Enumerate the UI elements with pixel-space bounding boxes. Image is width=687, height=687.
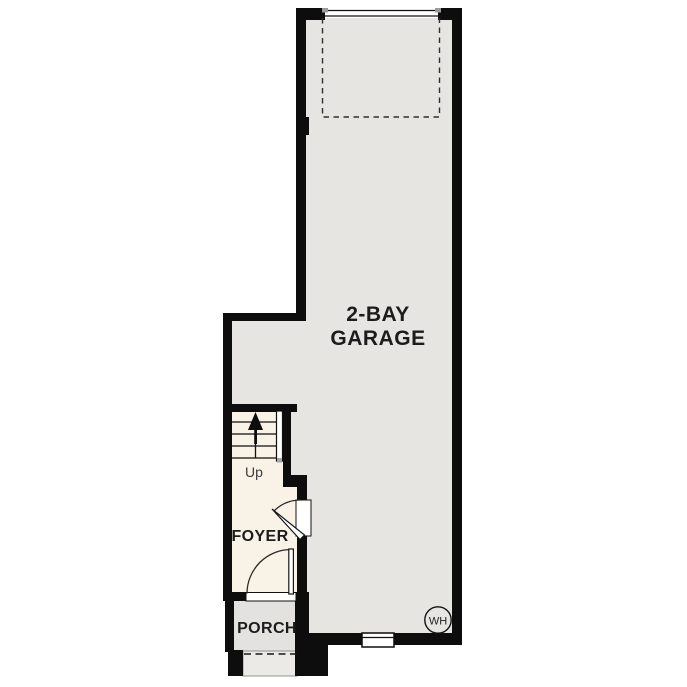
up-arrow-stem bbox=[254, 429, 257, 444]
threshold-box bbox=[362, 633, 394, 647]
water-heater: WH bbox=[425, 607, 451, 633]
door-jamb-cap bbox=[435, 8, 441, 13]
garage-label-line1: 2-BAY bbox=[346, 303, 410, 326]
wall-segment bbox=[223, 313, 306, 321]
handrail-end-cap bbox=[277, 458, 282, 463]
porch-label: PORCH bbox=[237, 620, 297, 637]
wall-segment bbox=[225, 592, 234, 652]
wall-segment bbox=[297, 534, 307, 601]
wall-segment bbox=[283, 404, 291, 482]
porch-right-pier bbox=[295, 633, 328, 676]
door-jamb-cap bbox=[322, 8, 328, 13]
wall-pilaster bbox=[296, 117, 309, 135]
wall-segment bbox=[296, 8, 306, 321]
entry-door-leaf bbox=[289, 549, 294, 594]
garage-rear-threshold bbox=[362, 633, 394, 647]
wall-segment bbox=[283, 475, 307, 487]
water-heater-label: WH bbox=[429, 616, 447, 628]
garage-label-line2: GARAGE bbox=[330, 327, 425, 350]
garage-overhead-door bbox=[322, 8, 441, 18]
wall-segment bbox=[452, 8, 462, 645]
garage-floor-left-extension bbox=[228, 318, 308, 408]
floor-plan-canvas: WH 2-BAY GARAGE FOYER PORCH Up bbox=[0, 0, 687, 687]
wall-segment bbox=[223, 313, 232, 601]
foyer-label: FOYER bbox=[231, 528, 288, 545]
floor-plan-page: WH 2-BAY GARAGE FOYER PORCH Up bbox=[0, 0, 687, 687]
porch-left-pier bbox=[228, 650, 243, 676]
stair-handrail bbox=[277, 411, 283, 461]
stairs-up-label: Up bbox=[245, 464, 263, 480]
